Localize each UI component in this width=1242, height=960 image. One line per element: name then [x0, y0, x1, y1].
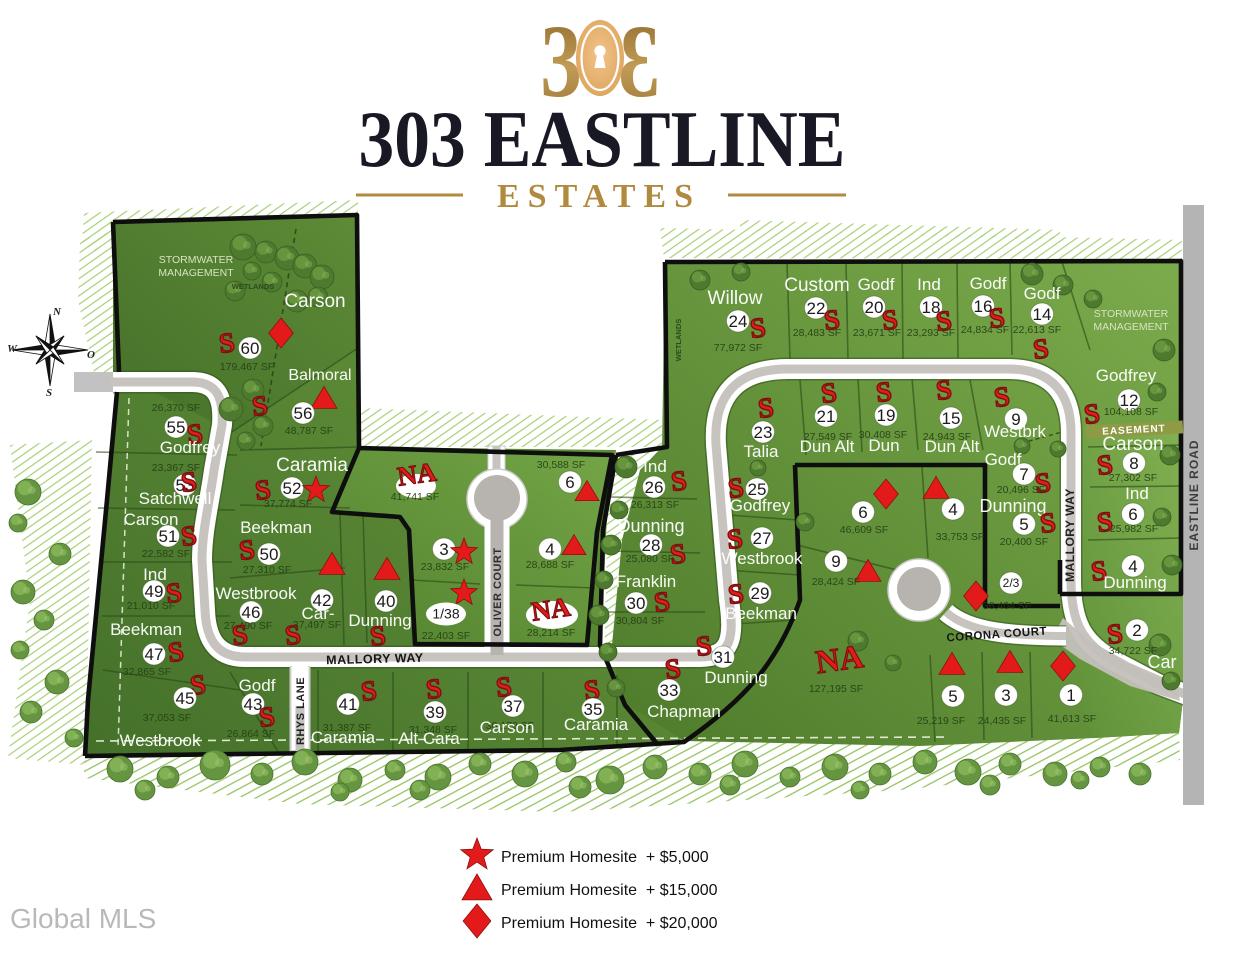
svg-text:36,404 SF: 36,404 SF	[983, 600, 1031, 612]
svg-text:3: 3	[1001, 686, 1010, 705]
svg-text:NA: NA	[395, 456, 438, 491]
svg-text:Beekman: Beekman	[725, 604, 797, 623]
svg-text:Dunning: Dunning	[704, 668, 767, 687]
svg-text:25,219 SF: 25,219 SF	[917, 715, 965, 727]
svg-text:20,400 SF: 20,400 SF	[1000, 536, 1048, 548]
svg-text:22,582 SF: 22,582 SF	[142, 548, 190, 560]
svg-text:Dunning: Dunning	[979, 496, 1046, 516]
svg-text:27: 27	[753, 529, 772, 548]
svg-text:28,688 SF: 28,688 SF	[526, 559, 574, 571]
svg-text:4: 4	[948, 500, 957, 519]
svg-text:EASTLINE ROAD: EASTLINE ROAD	[1187, 439, 1201, 550]
svg-text:39: 39	[426, 703, 445, 722]
svg-text:6: 6	[1128, 505, 1137, 524]
svg-text:6: 6	[565, 473, 574, 492]
svg-text:3: 3	[439, 540, 448, 559]
svg-text:179,467 SF: 179,467 SF	[220, 361, 274, 373]
svg-text:NA: NA	[529, 591, 572, 626]
svg-text:127,195 SF: 127,195 SF	[809, 683, 863, 695]
svg-text:27,310 SF: 27,310 SF	[243, 564, 291, 576]
svg-text:32,865 SF: 32,865 SF	[123, 666, 171, 678]
svg-text:26: 26	[645, 478, 664, 497]
svg-text:26,313 SF: 26,313 SF	[631, 499, 679, 511]
svg-text:26,370 SF: 26,370 SF	[152, 402, 200, 414]
svg-text:Premium Homesite + $20,000: Premium Homesite + $20,000	[501, 915, 718, 932]
svg-text:24,435 SF: 24,435 SF	[978, 715, 1026, 727]
svg-text:60: 60	[241, 339, 260, 358]
svg-text:Beekman: Beekman	[110, 620, 182, 639]
svg-text:37: 37	[504, 697, 523, 716]
svg-text:14: 14	[1033, 305, 1052, 324]
svg-text:21,010 SF: 21,010 SF	[127, 600, 175, 612]
svg-text:O: O	[87, 349, 95, 361]
svg-text:Carson: Carson	[480, 718, 535, 737]
svg-text:23,671 SF: 23,671 SF	[853, 327, 901, 339]
svg-text:49: 49	[145, 582, 164, 601]
svg-text:MALLORY WAY: MALLORY WAY	[326, 651, 424, 668]
svg-text:37,053 SF: 37,053 SF	[143, 712, 191, 724]
svg-text:31: 31	[714, 648, 733, 667]
svg-text:5: 5	[948, 687, 957, 706]
svg-text:W: W	[7, 343, 18, 355]
svg-text:22,403 SF: 22,403 SF	[422, 630, 470, 642]
svg-text:19: 19	[877, 406, 896, 425]
svg-text:Godf: Godf	[970, 274, 1007, 293]
svg-text:45: 45	[176, 689, 195, 708]
svg-text:40: 40	[377, 592, 396, 611]
svg-text:Balmoral: Balmoral	[288, 367, 351, 384]
svg-text:Global MLS: Global MLS	[10, 903, 156, 934]
svg-text:Caramia: Caramia	[311, 728, 376, 747]
svg-text:50: 50	[260, 545, 279, 564]
svg-text:MANAGEMENT: MANAGEMENT	[158, 267, 234, 279]
svg-text:2: 2	[1132, 621, 1141, 640]
svg-text:Ind: Ind	[1125, 484, 1149, 503]
svg-text:Premium Homesite + $15,000: Premium Homesite + $15,000	[501, 882, 718, 899]
svg-text:Westbrook: Westbrook	[216, 584, 297, 603]
svg-text:8: 8	[1129, 454, 1138, 473]
svg-text:104,108 SF: 104,108 SF	[1104, 406, 1158, 418]
svg-text:Talia: Talia	[744, 442, 780, 461]
svg-text:MALLORY WAY: MALLORY WAY	[1063, 488, 1077, 582]
svg-text:RHYS LANE: RHYS LANE	[295, 677, 307, 745]
svg-text:9: 9	[831, 552, 840, 571]
svg-text:Godf: Godf	[858, 275, 895, 294]
svg-text:Westbrook: Westbrook	[722, 549, 803, 568]
svg-text:55: 55	[167, 418, 186, 437]
svg-text:N: N	[52, 306, 62, 318]
svg-text:41,741 SF: 41,741 SF	[391, 491, 439, 503]
svg-text:Carson: Carson	[284, 291, 345, 312]
svg-text:2/3: 2/3	[1003, 576, 1020, 590]
svg-text:15: 15	[942, 409, 961, 428]
svg-text:S: S	[46, 387, 52, 399]
svg-text:27,302 SF: 27,302 SF	[1109, 472, 1157, 484]
svg-text:23: 23	[754, 423, 773, 442]
svg-text:48,787 SF: 48,787 SF	[285, 425, 333, 437]
svg-text:Godfrey: Godfrey	[160, 438, 221, 457]
svg-text:OLIVER COURT: OLIVER COURT	[492, 547, 504, 636]
svg-text:20,496 SF: 20,496 SF	[997, 484, 1045, 496]
svg-text:WETLANDS: WETLANDS	[674, 319, 683, 362]
svg-text:7: 7	[1019, 465, 1028, 484]
svg-text:37,774 SF: 37,774 SF	[264, 498, 312, 510]
svg-text:Godfrey: Godfrey	[730, 496, 791, 515]
svg-text:Dun: Dun	[868, 436, 899, 455]
svg-text:Satchwell: Satchwell	[139, 489, 212, 508]
svg-text:NA: NA	[813, 639, 865, 681]
svg-text:52: 52	[283, 479, 302, 498]
svg-text:Westbrook: Westbrook	[120, 731, 201, 750]
svg-text:30,804 SF: 30,804 SF	[616, 615, 664, 627]
svg-text:77,972 SF: 77,972 SF	[714, 342, 762, 354]
svg-text:Ind: Ind	[643, 457, 667, 476]
svg-text:28,214 SF: 28,214 SF	[527, 627, 575, 639]
svg-text:41: 41	[339, 695, 358, 714]
svg-text:28,483 SF: 28,483 SF	[793, 327, 841, 339]
svg-text:WETLANDS: WETLANDS	[232, 282, 275, 291]
svg-text:37,497 SF: 37,497 SF	[293, 619, 341, 631]
svg-text:Car: Car	[1147, 652, 1176, 672]
svg-text:Caramia: Caramia	[276, 455, 348, 476]
svg-text:28,424 SF: 28,424 SF	[812, 576, 860, 588]
svg-text:33: 33	[660, 681, 679, 700]
svg-text:24,834 SF: 24,834 SF	[961, 324, 1009, 336]
svg-text:51: 51	[159, 527, 178, 546]
svg-text:STORMWATER: STORMWATER	[1094, 308, 1169, 320]
svg-text:30,588 SF: 30,588 SF	[537, 459, 585, 471]
svg-text:24: 24	[729, 312, 748, 331]
svg-text:Custom: Custom	[784, 275, 849, 296]
svg-text:303 EASTLINE: 303 EASTLINE	[359, 96, 846, 184]
svg-text:25,982 SF: 25,982 SF	[1110, 523, 1158, 535]
svg-text:Godf: Godf	[239, 676, 276, 695]
svg-text:Dun Alt: Dun Alt	[925, 437, 980, 456]
svg-text:1: 1	[1066, 686, 1075, 705]
svg-text:46,609 SF: 46,609 SF	[840, 524, 888, 536]
svg-text:6: 6	[858, 503, 867, 522]
svg-text:Godf: Godf	[1024, 284, 1061, 303]
svg-text:1/38: 1/38	[432, 606, 459, 622]
svg-text:Dunning: Dunning	[1103, 573, 1166, 592]
svg-text:Westbrk: Westbrk	[984, 422, 1047, 441]
svg-text:Dunning: Dunning	[617, 516, 684, 536]
svg-text:30: 30	[627, 594, 646, 613]
svg-text:47: 47	[145, 645, 164, 664]
svg-text:Dun Alt: Dun Alt	[800, 437, 855, 456]
svg-text:Godfrey: Godfrey	[1096, 366, 1157, 385]
svg-text:Chapman: Chapman	[647, 702, 721, 721]
svg-text:33,753 SF: 33,753 SF	[936, 531, 984, 543]
svg-text:STORMWATER: STORMWATER	[159, 254, 234, 266]
svg-text:4: 4	[545, 540, 554, 559]
svg-text:41,613 SF: 41,613 SF	[1048, 713, 1096, 725]
svg-text:5: 5	[1019, 515, 1028, 534]
svg-text:Willow: Willow	[708, 288, 763, 309]
svg-text:Ind: Ind	[917, 275, 941, 294]
svg-text:56: 56	[294, 404, 313, 423]
svg-text:MANAGEMENT: MANAGEMENT	[1093, 321, 1169, 333]
svg-text:25,080 SF: 25,080 SF	[626, 553, 674, 565]
svg-text:Alt Cara: Alt Cara	[398, 729, 460, 748]
svg-text:23,293 SF: 23,293 SF	[907, 327, 955, 339]
svg-text:23,832 SF: 23,832 SF	[421, 561, 469, 573]
svg-text:21: 21	[817, 407, 836, 426]
svg-text:Premium Homesite + $5,000: Premium Homesite + $5,000	[501, 849, 709, 866]
svg-text:29: 29	[751, 584, 770, 603]
svg-text:Caramia: Caramia	[564, 715, 629, 734]
svg-text:26,864 SF: 26,864 SF	[227, 728, 275, 740]
